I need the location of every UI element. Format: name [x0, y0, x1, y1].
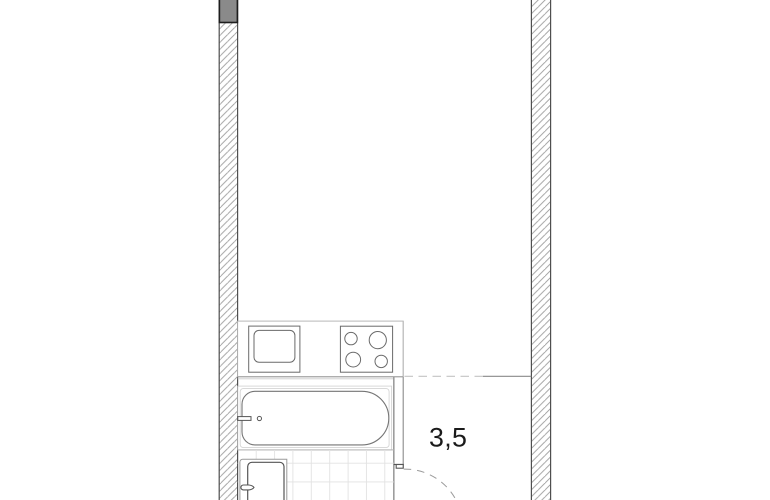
svg-text:3,5: 3,5 — [429, 423, 467, 453]
